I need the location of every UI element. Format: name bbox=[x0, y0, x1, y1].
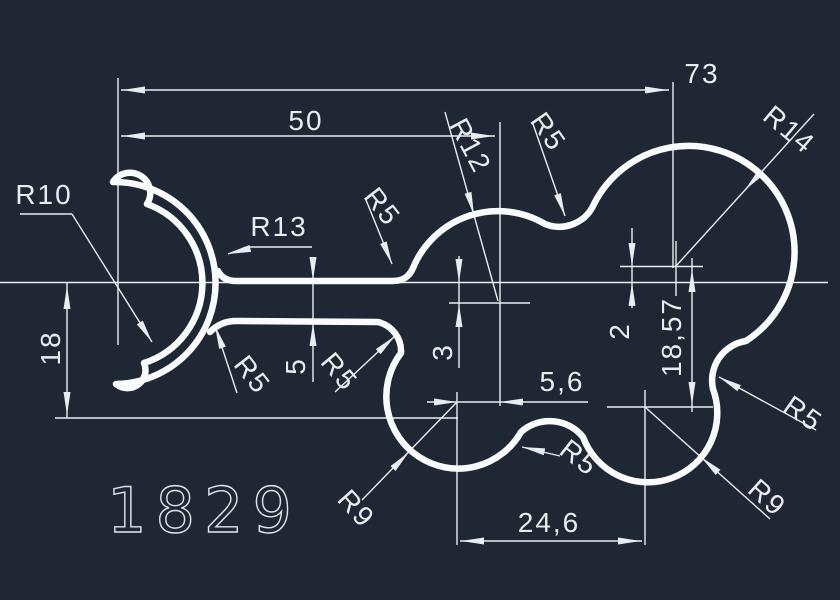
dim-label-2: 2 bbox=[606, 322, 634, 340]
dim-label-50: 50 bbox=[288, 107, 323, 135]
dim-label-73: 73 bbox=[684, 60, 719, 88]
dim-label-5-6: 5,6 bbox=[540, 368, 585, 396]
cad-viewport[interactable]: 73 50 18 24,6 5,6 3 5 2 18,57 R10 R13 R5… bbox=[0, 0, 840, 600]
part-number: 1829 bbox=[107, 480, 301, 542]
dim-label-18: 18 bbox=[37, 330, 65, 365]
dim-label-5: 5 bbox=[282, 357, 310, 375]
dim-label-3: 3 bbox=[429, 343, 457, 361]
profile-body bbox=[210, 146, 795, 482]
profile-claw bbox=[113, 173, 216, 388]
dim-label-18-57: 18,57 bbox=[658, 297, 686, 377]
radius-label-r13: R13 bbox=[250, 213, 307, 241]
radius-label-r10: R10 bbox=[15, 181, 72, 209]
dim-label-24-6: 24,6 bbox=[518, 509, 581, 537]
